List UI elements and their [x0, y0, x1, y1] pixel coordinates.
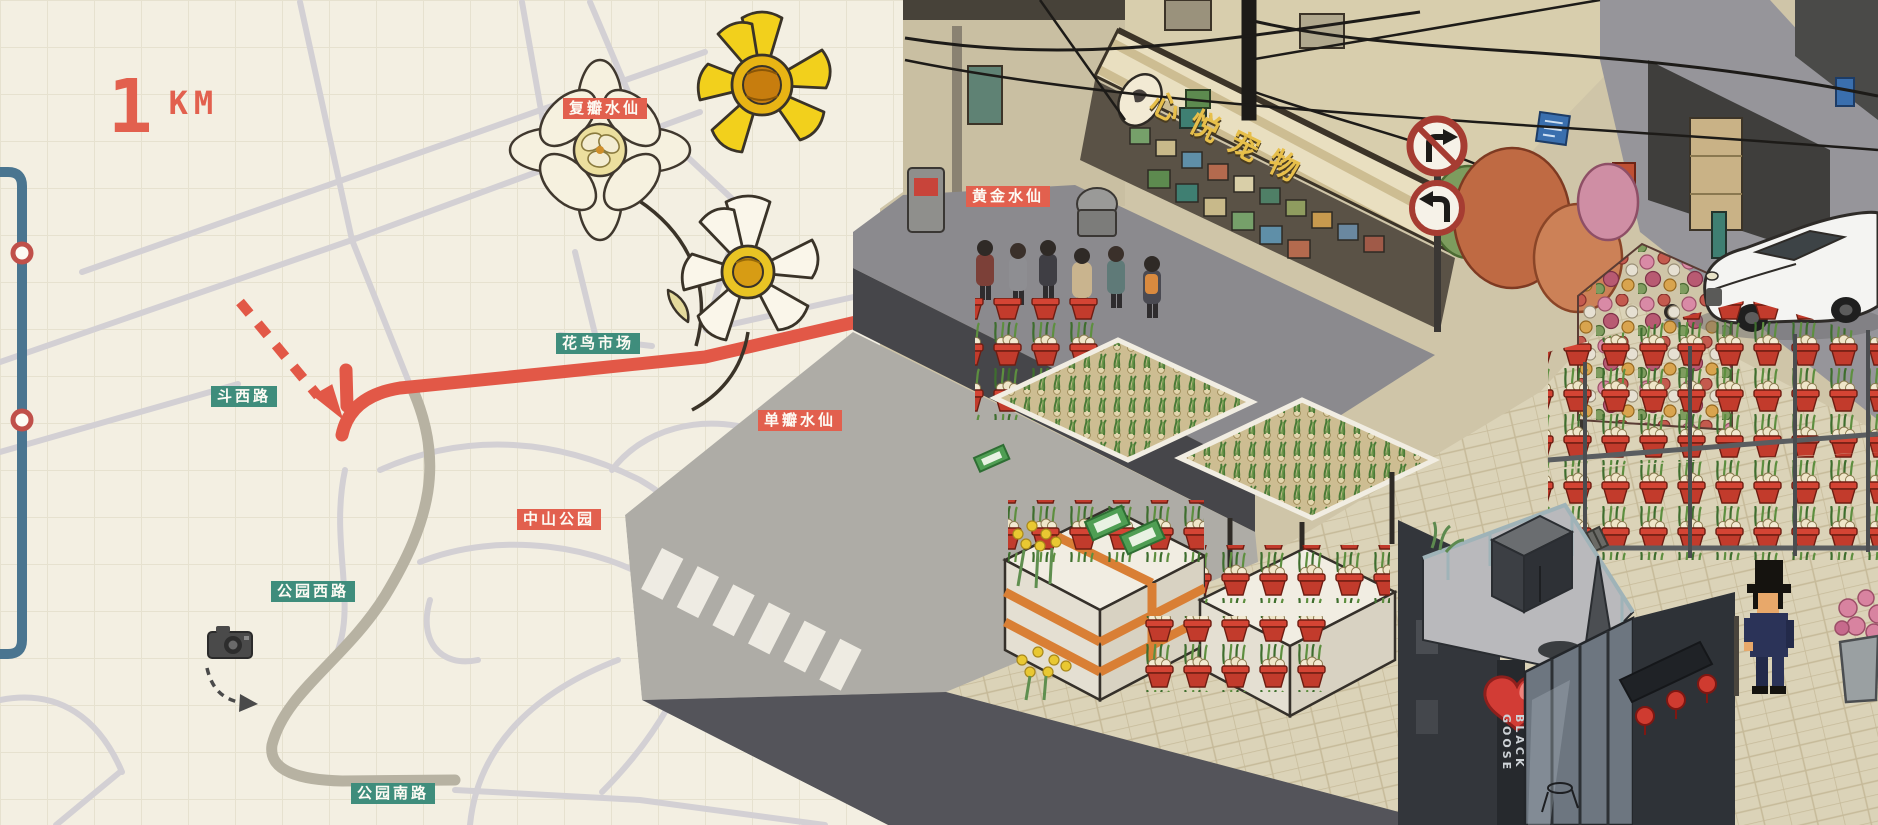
flower-label-golden-narcissus[interactable]: 黄金水仙	[966, 186, 1050, 207]
road-label-flower-bird-market[interactable]: 花鸟市场	[556, 333, 640, 354]
road-label-zhongshan-park[interactable]: 中山公园	[517, 509, 601, 530]
left-turn-sign-icon	[1412, 183, 1462, 233]
flower-label-double-narcissus[interactable]: 复瓣水仙	[563, 98, 647, 119]
scene-artwork	[0, 0, 1878, 825]
road-label-park-west[interactable]: 公园西路	[271, 581, 355, 602]
map-scale-number: 1	[108, 64, 155, 150]
no-right-turn-sign-icon	[1410, 119, 1464, 173]
map-scale-unit: KM	[169, 84, 220, 122]
map-scale: 1KM	[108, 74, 219, 141]
game-screenshot: 1KM 斗西路 花鸟市场 中山公园 公园西路 公园南路 复瓣水仙 黄金水仙 单瓣…	[0, 0, 1878, 825]
road-label-park-south[interactable]: 公园南路	[351, 783, 435, 804]
flower-label-single-narcissus[interactable]: 单瓣水仙	[758, 410, 842, 431]
cafe-sign-vertical-text: BLACK GOOSE	[1500, 714, 1526, 825]
road-label-douxi[interactable]: 斗西路	[211, 386, 277, 407]
cane	[1734, 616, 1739, 696]
